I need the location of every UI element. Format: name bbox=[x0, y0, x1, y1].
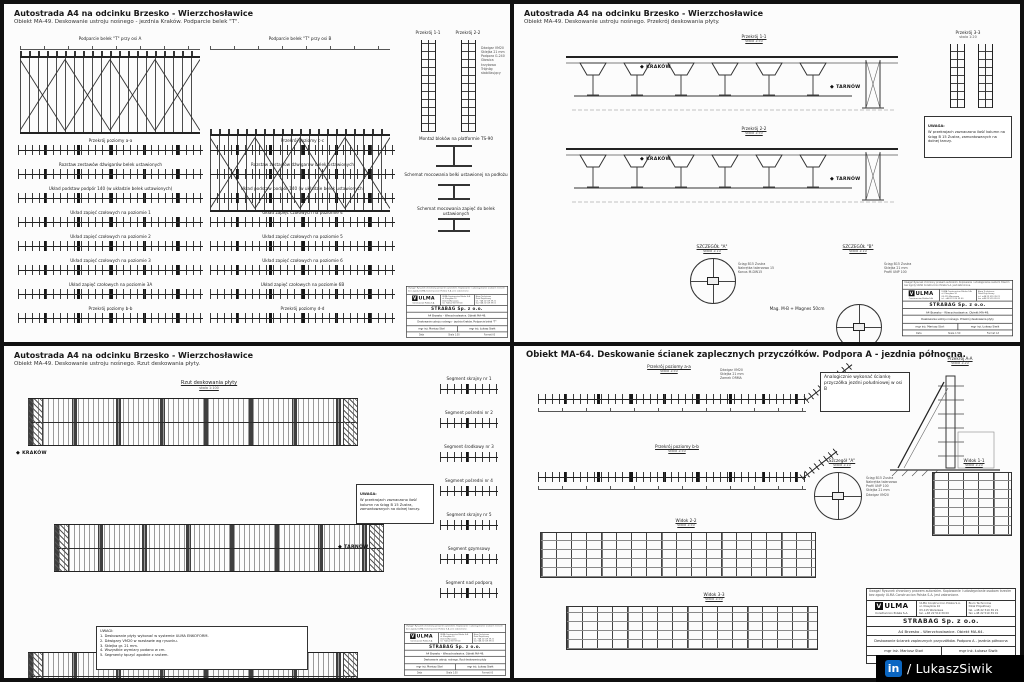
strip-label: Układ zapięć czołowych na poziomie 3 bbox=[18, 258, 203, 263]
strip-drawing bbox=[18, 265, 203, 275]
deck-section-2-drawing bbox=[562, 142, 902, 208]
sheet-ma49-przekroj-plyty: Autostrada A4 na odcinku Brzesko - Wierz… bbox=[514, 4, 1020, 342]
titleblock-contact: Biuro Techniczne Dział Projektowy tel. +… bbox=[474, 295, 507, 305]
strip-drawing bbox=[18, 193, 203, 203]
titleblock-project: A4 Brzesko - Wierzchosławice. Obiekt MA-… bbox=[867, 626, 1015, 635]
detail-belka-label: Schemat mocowania belki ustawionej na po… bbox=[404, 172, 508, 177]
strip-label: Rozstaw zestawów dźwigarów belek ustawio… bbox=[210, 162, 395, 167]
strip-label: Układ zapięć czołowych na poziomie 4 bbox=[210, 210, 395, 215]
sheet-subtitle: Obiekt MA-49. Deskowanie ustroju nośnego… bbox=[524, 19, 924, 26]
titleblock-address: ULMA Construccion Polska S.A. ul. Klasyk… bbox=[917, 601, 966, 616]
strip-drawing bbox=[18, 313, 203, 323]
strip-drawing bbox=[18, 217, 203, 227]
strip-drawing bbox=[18, 241, 203, 251]
strip-drawing bbox=[18, 289, 203, 299]
strip-drawing bbox=[210, 169, 395, 179]
segment-drawing bbox=[440, 486, 498, 496]
plan-label: Rzut deskowania płytyskala 1:100 bbox=[144, 380, 274, 391]
view-1-1-label: Widok 1-1skala 1:20 bbox=[938, 458, 1010, 468]
detail-zapiecia-drawing bbox=[438, 218, 470, 232]
segment-drawing bbox=[440, 520, 498, 530]
section-3-3-drawing bbox=[950, 44, 965, 108]
segment-drawing bbox=[440, 588, 498, 598]
title-block: Uwaga! Rysunek chroniony prawem autorski… bbox=[902, 280, 1013, 336]
segment-label: Segment skrajny nr 5 bbox=[438, 512, 500, 517]
ulma-logo-icon: V bbox=[875, 602, 883, 610]
truss-b-label: Podparcie belek "T" przy osi B bbox=[210, 36, 390, 41]
view-2-2-label: Widok 2-2skala 1:50 bbox=[636, 518, 736, 528]
truss-drawing-a bbox=[20, 56, 200, 134]
segment-drawing bbox=[440, 452, 498, 462]
titleblock-contact: Biuro Techniczne Dział Projektowy tel. +… bbox=[967, 601, 1015, 616]
view-3-3-label: Widok 3-3skala 1:50 bbox=[664, 592, 764, 602]
segment-drawing bbox=[440, 384, 498, 394]
strip-label: Rozstaw zestawów dźwigarów belek ustawio… bbox=[18, 162, 203, 167]
dimension-line bbox=[20, 46, 200, 50]
detail-belka-drawing bbox=[438, 184, 470, 200]
detail-b-label: SZCZEGÓŁ "B"skala 1:10 bbox=[826, 244, 890, 254]
titleblock-disclaimer: Uwaga! Rysunek chroniony prawem autorski… bbox=[867, 589, 1015, 600]
strip-label: Przekrój poziomy b-b bbox=[18, 306, 203, 311]
detail-a-drawing bbox=[814, 472, 862, 520]
titleblock-client: STRABAG Sp. z o.o. bbox=[407, 305, 508, 312]
author-right: mgr inż. Łukasz Siwik bbox=[942, 647, 1016, 655]
krakow-marker: ◆ KRAKÓW bbox=[640, 64, 671, 70]
note-box: UWAGA:W przekrojach zaznaczono ilość kol… bbox=[924, 116, 1012, 158]
sheet-header: Autostrada A4 na odcinku Brzesko - Wierz… bbox=[14, 351, 414, 368]
section-3-3-drawing-b bbox=[978, 44, 993, 108]
section-aa-label: Przekrój poziomy a-askala 1:50 bbox=[604, 364, 734, 374]
detail-b-annotations: Ściąg B15 Zustra Sklejka 21 mm Profil UN… bbox=[884, 262, 928, 274]
detail-a-label: SZCZEGÓŁ "A"skala 1:10 bbox=[680, 244, 744, 254]
view-1-1-drawing bbox=[932, 472, 1012, 536]
ulma-logo: VULMA Construccion Polska S.A. bbox=[903, 290, 940, 301]
truss-a-label: Podparcie belek "T" przy osi A bbox=[20, 36, 200, 41]
strip-label: Przekrój poziomy c-c bbox=[210, 138, 395, 143]
strip-label: Układ zapięć czołowych na poziomie 3A bbox=[18, 282, 203, 287]
titleblock-client: STRABAG Sp. z o.o. bbox=[867, 616, 1015, 626]
strip-label: Układ podstaw podpór 140 (w układzie bel… bbox=[18, 186, 203, 191]
plan-band-1 bbox=[28, 398, 358, 446]
sheet-header: Autostrada A4 na odcinku Brzesko - Wierz… bbox=[524, 9, 924, 26]
dimension-line bbox=[210, 46, 390, 50]
segment-label: Segment gzymsowy bbox=[438, 546, 500, 551]
detail-b-drawing bbox=[836, 304, 882, 342]
section-2-2-label: Przekrój 2-2skala 1:50 bbox=[684, 126, 824, 136]
strip-label: Układ podstaw podpór 140 (w układzie bel… bbox=[210, 186, 395, 191]
titleblock-drawing-title: Deskowanie ustroju nośnego - jezdnia Kra… bbox=[407, 318, 508, 325]
sheet-ma49-podparcie-belek: Autostrada A4 na odcinku Brzesko - Wierz… bbox=[4, 4, 510, 342]
plan-band-2 bbox=[54, 524, 384, 572]
strip-label: Układ zapięć czołowych na poziomie 2 bbox=[18, 234, 203, 239]
section-2-2-drawing bbox=[461, 40, 476, 132]
sheet-title: Autostrada A4 na odcinku Brzesko - Wierz… bbox=[14, 351, 414, 360]
sheet-title: Autostrada A4 na odcinku Brzesko - Wierz… bbox=[524, 9, 924, 18]
section-3-3-label: Przekrój 3-3skala 1:20 bbox=[938, 30, 998, 40]
strip-drawing bbox=[18, 145, 203, 155]
strip-drawing bbox=[210, 313, 395, 323]
author-right: mgr inż. Łukasz Siwik bbox=[457, 326, 507, 331]
sheet-subtitle: Obiekt MA-49. Deskowanie ustroju nośnego… bbox=[14, 19, 414, 26]
titleblock-disclaimer: Uwaga! Rysunek chroniony prawem autorski… bbox=[407, 287, 508, 294]
section-1-1-label: Przekrój 1-1skala 1:50 bbox=[684, 34, 824, 44]
ulma-logo-icon: V bbox=[909, 291, 915, 297]
titleblock-footer: Data Skala 1:50 Format A3 bbox=[407, 332, 508, 337]
dimension-line bbox=[538, 486, 806, 490]
strip-label: Układ zapięć czołowych na poziomie 6 bbox=[210, 258, 395, 263]
deck-section-1-drawing bbox=[562, 50, 902, 116]
section-AA-label: Przekrój A-Askala 1:20 bbox=[924, 356, 996, 366]
detail-a-label: Szczegół "A"skala 1:10 bbox=[806, 458, 878, 468]
view-2-2-drawing bbox=[540, 532, 816, 578]
titleblock-drawing-title: Deskowanie ścianek zaplecznych przyczółk… bbox=[867, 635, 1015, 646]
detail-a-annotations: Ściąg B15 Zustra Nakrętka talerzowa 15 K… bbox=[738, 262, 782, 274]
sheet-subtitle: Obiekt MA-49. Deskowanie ustroju nośnego… bbox=[14, 361, 414, 368]
strip-label: Układ zapięć czołowych na poziomie 6B bbox=[210, 282, 395, 287]
section-1-1-label: Przekrój 1-1 bbox=[408, 30, 448, 35]
title-block: Uwaga! Rysunek chroniony prawem autorski… bbox=[406, 286, 508, 338]
magnet-caption: Mag. M-B + Magnes 50cm bbox=[752, 306, 842, 311]
ulma-logo: VULMA Construccion Polska S.A. bbox=[867, 601, 917, 616]
section-bb-label: Przekrój poziomy b-bskala 1:50 bbox=[612, 444, 742, 454]
title-block: Uwaga! Rysunek chroniony prawem autorski… bbox=[404, 624, 506, 676]
strip-drawing bbox=[210, 217, 395, 227]
view-3-3-drawing bbox=[566, 606, 818, 650]
dimension-line bbox=[538, 408, 806, 412]
strip-drawing bbox=[210, 265, 395, 275]
author-left: mgr inż. Mariusz Stoń bbox=[407, 326, 458, 331]
detail-a-annotations: Ściąg B15 Zustra Nakrętka talerzowa Prof… bbox=[866, 476, 924, 497]
strip-drawing bbox=[210, 145, 395, 155]
section-1-1-drawing bbox=[421, 40, 436, 132]
segment-drawing bbox=[440, 554, 498, 564]
segment-label: Segment pośredni nr 4 bbox=[438, 478, 500, 483]
ulma-logo: VULMA Construccion Polska S.A. bbox=[405, 633, 439, 643]
strip-annotations: Dźwigar VM20 Sklejka 21 mm Zamek ORMA bbox=[720, 368, 790, 380]
strip-label: Układ zapięć czołowych na poziomie 5 bbox=[210, 234, 395, 239]
sheet-ma64-scianki-zapleczne: Obiekt MA-64. Deskowanie ścianek zaplecz… bbox=[514, 346, 1020, 678]
segment-label: Segment skrajny nr 1 bbox=[438, 376, 500, 381]
strip-drawing bbox=[18, 169, 203, 179]
ulma-logo-icon: V bbox=[410, 634, 415, 639]
titleblock-authors: mgr inż. Mariusz Stoń mgr inż. Łukasz Si… bbox=[407, 325, 508, 331]
krakow-marker: ◆ KRAKÓW bbox=[16, 450, 47, 456]
ulma-logo: VULMA Construccion Polska S.A. bbox=[407, 295, 441, 305]
titleblock-authors: mgr inż. Mariusz Stoń mgr inż. Łukasz Si… bbox=[867, 646, 1015, 655]
legend-box: UWAGI: 1. Deskowanie płyty wykonać w sys… bbox=[96, 626, 308, 670]
section-aa-drawing bbox=[538, 394, 806, 404]
linkedin-watermark[interactable]: in / LukaszSiwik bbox=[876, 655, 1024, 682]
strip-drawing bbox=[210, 193, 395, 203]
author-left: mgr inż. Mariusz Stoń bbox=[867, 647, 942, 655]
title-block: Uwaga! Rysunek chroniony prawem autorski… bbox=[866, 588, 1016, 664]
sheet-title: Autostrada A4 na odcinku Brzesko - Wierz… bbox=[14, 9, 414, 18]
tarnow-marker: ◆ TARNÓW bbox=[830, 176, 861, 182]
strip-label: Przekrój poziomy d-d bbox=[210, 306, 395, 311]
detail-ts90-label: Montaż bloków na platformie TS-90 bbox=[404, 136, 508, 141]
segment-label: Segment środkowy nr 3 bbox=[438, 444, 500, 449]
ulma-logo-icon: V bbox=[412, 296, 417, 301]
strip-drawing bbox=[210, 241, 395, 251]
krakow-marker: ◆ KRAKÓW bbox=[640, 156, 671, 162]
segment-label: Segment nad podporą bbox=[438, 580, 500, 585]
segment-label: Segment pośredni nr 2 bbox=[438, 410, 500, 415]
section-2-2-label: Przekrój 2-2 bbox=[448, 30, 488, 35]
detail-zapiecia-label: Schemat mocowania zapięć do belek ustawi… bbox=[404, 206, 508, 217]
detail-ts90-drawing bbox=[436, 145, 472, 167]
sheet-ma49-rzut-plyty: Autostrada A4 na odcinku Brzesko - Wierz… bbox=[4, 346, 510, 678]
detail-a-drawing bbox=[690, 258, 736, 304]
note-box: UWAGA:W przekrojach zaznaczono ilość kol… bbox=[356, 484, 434, 524]
section-bb-drawing bbox=[538, 472, 806, 482]
sheet-header: Autostrada A4 na odcinku Brzesko - Wierz… bbox=[14, 9, 414, 26]
watermark-text: / LukaszSiwik bbox=[907, 661, 993, 676]
linkedin-icon[interactable]: in bbox=[885, 660, 902, 677]
tarnow-marker: ◆ TARNÓW bbox=[338, 544, 369, 550]
strip-label: Układ zapięć czołowych na poziomie 1 bbox=[18, 210, 203, 215]
strip-drawing bbox=[210, 289, 395, 299]
segment-drawing bbox=[440, 418, 498, 428]
strip-label: Przekrój poziomy a-a bbox=[18, 138, 203, 143]
tarnow-marker: ◆ TARNÓW bbox=[830, 84, 861, 90]
tower-annotations: Dźwigar VM20 Sklejka 21 mm Podpora G-240… bbox=[481, 46, 509, 75]
titleblock-address: ULMA Construccion Polska S.A. ul. Klasyk… bbox=[441, 295, 475, 305]
